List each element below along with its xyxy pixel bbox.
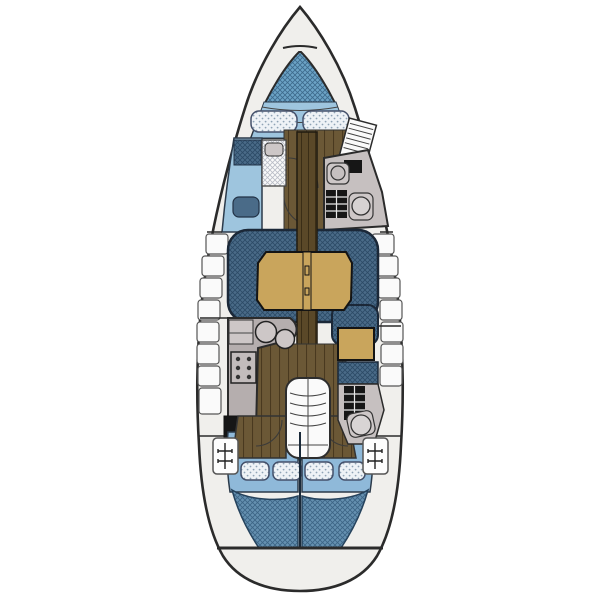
head-sink-icon — [331, 166, 345, 180]
port-aft-cabin-entry — [233, 416, 286, 458]
pillow-1 — [241, 462, 269, 480]
settee-cushion-small — [233, 197, 259, 217]
boat-floor-plan — [0, 0, 600, 600]
stove — [231, 352, 256, 383]
galley-sink-2 — [276, 330, 295, 349]
nav-seat — [338, 362, 378, 384]
toilet-icon-aft — [351, 415, 371, 435]
v-berth-pillow-port — [251, 111, 297, 132]
port-settee-forward — [222, 138, 262, 232]
chart-table — [338, 328, 374, 360]
pillow-2 — [273, 462, 301, 480]
pillow-3 — [305, 462, 333, 480]
table-hinge — [303, 252, 311, 310]
vanity-sink — [265, 143, 283, 156]
galley-sink-1 — [256, 322, 277, 343]
v-berth-pillow-starboard — [303, 111, 349, 132]
toilet-icon-forward — [352, 197, 370, 215]
galley-fridge — [229, 320, 253, 344]
aft-head — [338, 384, 384, 444]
deck-cleat-starboard — [363, 438, 388, 474]
pillow-4 — [339, 462, 365, 480]
vanity-area — [262, 140, 286, 186]
companionway-steps — [286, 378, 330, 458]
saloon-table — [257, 252, 352, 310]
settee-cushion-forward — [234, 140, 261, 165]
head-shelf-grid — [326, 190, 347, 218]
deck-cleat-port — [213, 438, 238, 474]
forward-head — [324, 150, 388, 230]
